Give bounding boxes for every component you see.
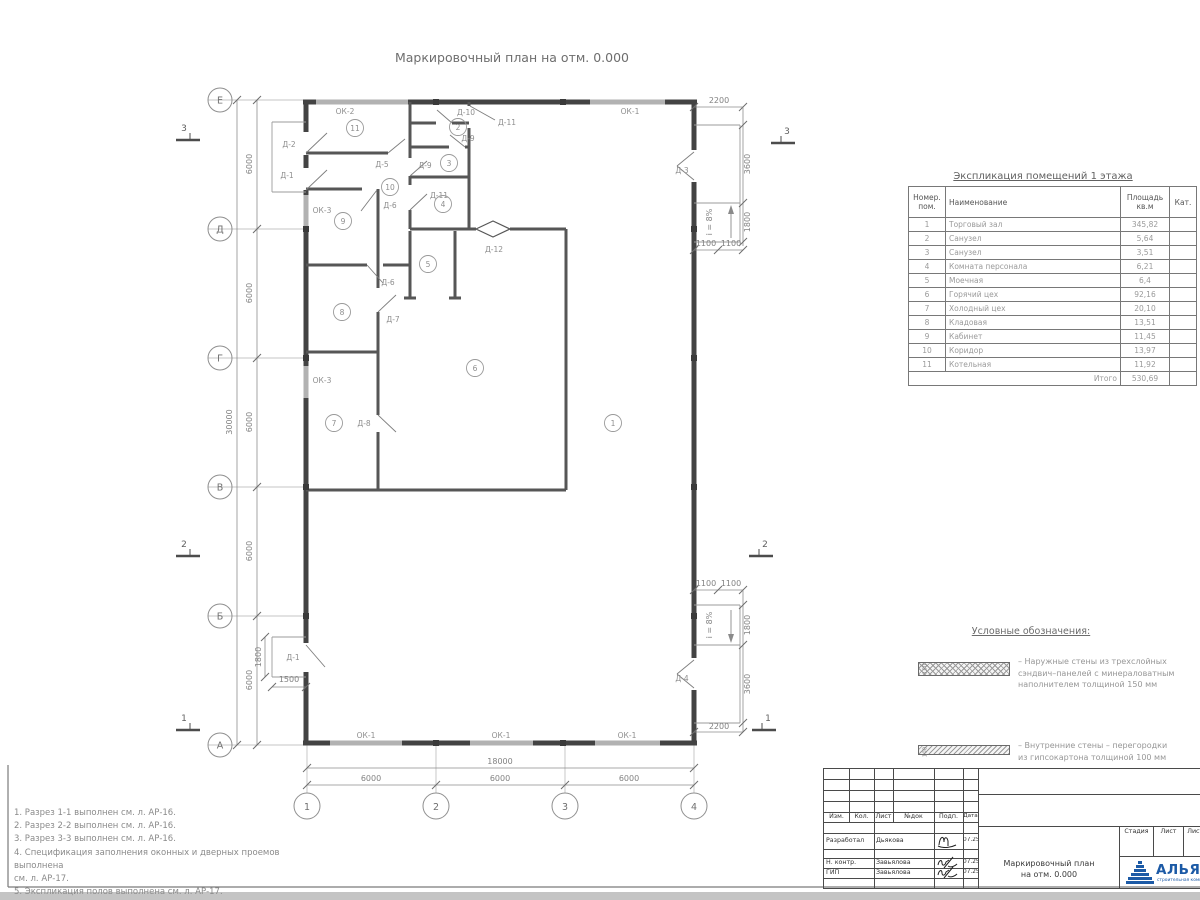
explication-cell: Холодный цех <box>946 302 1121 316</box>
dimension-label: 3600 <box>743 154 752 174</box>
ramp-arrow-head <box>728 634 734 643</box>
dimension-label: 1800 <box>254 647 263 667</box>
axis-label: В <box>217 483 224 494</box>
explication-cell <box>1170 316 1197 330</box>
explication-cell <box>1170 246 1197 260</box>
door-window-label: Д-7 <box>386 315 400 324</box>
explication-row: 7Холодный цех20,10 <box>909 302 1197 316</box>
legend-item-exterior-wall: 150 – Наружные стены из трехслойныхсэндв… <box>898 658 1198 698</box>
dimension-label: 2200 <box>709 96 729 105</box>
signature-dyakova <box>936 833 962 848</box>
door-window-label: ОК-3 <box>313 376 332 385</box>
explication-cell <box>1170 288 1197 302</box>
explication-cell: 9 <box>909 330 946 344</box>
door-swing <box>388 139 405 153</box>
dimension-label: 1800 <box>743 212 752 232</box>
legend-line: из гипсокартона толщиной 100 мм <box>1018 752 1167 764</box>
section-marker-label: 3 <box>181 124 187 134</box>
column-marker <box>433 99 439 105</box>
door-window-label: Д-3 <box>675 166 689 175</box>
explication-cell <box>1170 260 1197 274</box>
dimension-label: 6000 <box>361 774 381 783</box>
door-window-label: Д-5 <box>375 160 389 169</box>
tb-sheet: Лист <box>1154 828 1183 835</box>
explication-cell: 3,51 <box>1121 246 1170 260</box>
title-block: Изм. Кол. Лист №док Подп. Дата Разработа… <box>823 768 1200 889</box>
note-line: см. л. АР-17. <box>14 873 314 886</box>
column-marker <box>691 226 697 232</box>
exterior-wall-swatch: 150 <box>918 662 1010 676</box>
explication-cell: 20,10 <box>1121 302 1170 316</box>
explication-cell: 92,16 <box>1121 288 1170 302</box>
tb-stage: Стадия <box>1120 828 1153 835</box>
door-swing <box>677 152 694 166</box>
explication-cell: 11 <box>909 358 946 372</box>
dimension-label: 6000 <box>490 774 510 783</box>
dimension-label: 1100 <box>721 239 741 248</box>
room-number: 7 <box>332 419 337 428</box>
column-marker <box>691 613 697 619</box>
dimension-label: 1500 <box>279 675 299 684</box>
explication-row: 1Торговый зал345,82 <box>909 218 1197 232</box>
explication-table: Номер. пом. Наименование Площадь кв.м Ка… <box>908 186 1197 386</box>
ramp-arrow-head <box>728 205 734 214</box>
explication-cell: 11,92 <box>1121 358 1170 372</box>
explication-row: 4Комната персонала6,21 <box>909 260 1197 274</box>
door-window-label: Д-2 <box>282 140 296 149</box>
column-marker <box>560 99 566 105</box>
axis-label: А <box>217 741 224 752</box>
explication-title: Экспликация помещений 1 этажа <box>908 171 1178 182</box>
axis-label: 4 <box>691 802 697 813</box>
door-window-label: ОК-1 <box>621 107 640 116</box>
door-window-label: Д-12 <box>485 245 503 254</box>
tb-role: ГИП <box>826 869 873 876</box>
tb-col-izm: Изм. <box>824 813 849 820</box>
note-line: 5. Экспликация полов выполнена см. л. АР… <box>14 886 314 899</box>
legend-line: сэндвич–панелей с минераловатным <box>1018 668 1174 680</box>
column-marker <box>433 740 439 746</box>
door-swing <box>378 295 396 312</box>
door-window-label: ОК-1 <box>492 731 511 740</box>
legend-line: – Внутренние стены – перегородки <box>1018 740 1167 752</box>
explication-total-row: Итого530,69 <box>909 372 1197 386</box>
tb-col-list: Лист <box>874 813 893 820</box>
legend-line: – Наружные стены из трехслойных <box>1018 656 1174 668</box>
tb-doc-line1: Маркировочный план <box>979 859 1119 870</box>
explication-cell <box>1170 218 1197 232</box>
dimension-label: i = 8% <box>705 611 714 638</box>
total-label: Итого <box>909 372 1121 386</box>
plan-title: Маркировочный план на отм. 0.000 <box>395 50 629 65</box>
wall-thickness-label: 100 <box>922 747 928 758</box>
door-window-label: ОК-2 <box>336 107 355 116</box>
dimension-label: 30000 <box>225 409 234 434</box>
dimension-label: 6000 <box>245 670 254 690</box>
room-number: 9 <box>341 217 346 226</box>
tb-doc-title: Маркировочный план на отм. 0.000 <box>979 859 1119 885</box>
dimension-label: 18000 <box>487 757 512 766</box>
tb-sheets: Листов <box>1184 828 1200 835</box>
door-swing <box>378 415 396 432</box>
col-header-num: Номер. пом. <box>909 187 946 218</box>
explication-cell: 3 <box>909 246 946 260</box>
explication-cell: 11,45 <box>1121 330 1170 344</box>
tb-date: 07.25 <box>963 859 978 865</box>
explication-cell: Горячий цех <box>946 288 1121 302</box>
door-window-label: Д-6 <box>381 278 395 287</box>
tb-col-kol: Кол. <box>849 813 874 820</box>
tb-name: Дьякова <box>876 837 932 844</box>
explication-cell: Кладовая <box>946 316 1121 330</box>
door-window-label: Д-9 <box>418 161 432 170</box>
door-swing <box>306 645 325 667</box>
column-marker <box>303 484 309 490</box>
explication-cell: Котельная <box>946 358 1121 372</box>
double-door-symbol <box>476 221 510 237</box>
explication-row: 9Кабинет11,45 <box>909 330 1197 344</box>
explication-cell: 5 <box>909 274 946 288</box>
dimension-label: 6000 <box>619 774 639 783</box>
door-window-label: ОК-1 <box>618 731 637 740</box>
tb-doc-line2: на отм. 0.000 <box>979 870 1119 881</box>
explication-cell <box>1170 274 1197 288</box>
column-marker <box>691 484 697 490</box>
explication-cell: Моечная <box>946 274 1121 288</box>
column-marker <box>303 355 309 361</box>
interior-wall-swatch: 100 <box>918 745 1010 755</box>
legend-text: – Внутренние стены – перегородкииз гипсо… <box>1018 740 1167 763</box>
door-swing <box>677 660 694 674</box>
axis-label: Е <box>217 96 223 107</box>
dimension-label: 1100 <box>721 579 741 588</box>
dimension-label: 6000 <box>245 412 254 432</box>
company-logo: АЛЬЯНС строительная компания <box>1120 857 1200 888</box>
column-marker <box>303 226 309 232</box>
room-number: 1 <box>611 419 616 428</box>
explication-row: 11Котельная11,92 <box>909 358 1197 372</box>
explication-block: Экспликация помещений 1 этажа Номер. пом… <box>908 171 1178 386</box>
door-window-label: Д-10 <box>457 108 475 117</box>
explication-cell: 5,64 <box>1121 232 1170 246</box>
explication-cell: 6 <box>909 288 946 302</box>
signature-zavyalova <box>936 866 962 879</box>
door-swing <box>361 190 377 211</box>
note-line: 4. Спецификация заполнения оконных и две… <box>14 847 314 873</box>
explication-cell: 6,21 <box>1121 260 1170 274</box>
door-swing <box>306 170 327 190</box>
explication-cell <box>1170 358 1197 372</box>
room-number: 4 <box>441 200 446 209</box>
tb-role: Н. контр. <box>826 859 873 866</box>
legend-line: наполнителем толщиной 150 мм <box>1018 679 1174 691</box>
door-window-label: Д-1 <box>280 171 294 180</box>
explication-cell: 345,82 <box>1121 218 1170 232</box>
explication-cell <box>1170 330 1197 344</box>
dimension-label: 6000 <box>245 541 254 561</box>
section-marker-label: 3 <box>784 127 790 137</box>
explication-body: 1Торговый зал345,822Санузел5,643Санузел3… <box>909 218 1197 386</box>
explication-row: 6Горячий цех92,16 <box>909 288 1197 302</box>
door-window-label: ОК-3 <box>313 206 332 215</box>
room-number: 6 <box>473 364 478 373</box>
column-marker <box>303 613 309 619</box>
note-line: 2. Разрез 2-2 выполнен см. л. АР-16. <box>14 820 314 833</box>
explication-cell: 13,97 <box>1121 344 1170 358</box>
col-header-name: Наименование <box>946 187 1121 218</box>
axis-label: 3 <box>562 802 568 813</box>
door-window-label: Д-11 <box>498 118 516 127</box>
explication-row: 2Санузел5,64 <box>909 232 1197 246</box>
dimension-label: 1100 <box>696 239 716 248</box>
dimension-label: 6000 <box>245 154 254 174</box>
drawing-sheet: Маркировочный план на отм. 0.000 ЕДГВБА1… <box>0 0 1200 900</box>
explication-cell: 6,4 <box>1121 274 1170 288</box>
tb-name: Завьялова <box>876 859 932 866</box>
door-window-label: Д-8 <box>357 419 371 428</box>
dimension-label: 2200 <box>709 722 729 731</box>
wall-thickness-label: 150 <box>922 664 928 675</box>
section-marker-label: 2 <box>762 540 768 550</box>
explication-header-row: Номер. пом. Наименование Площадь кв.м Ка… <box>909 187 1197 218</box>
tb-role: Разработал <box>826 837 873 844</box>
explication-cell: Кабинет <box>946 330 1121 344</box>
note-line: 3. Разрез 3-3 выполнен см. л. АР-16. <box>14 833 314 846</box>
dimension-label: 1800 <box>743 615 752 635</box>
tb-date: 07.25 <box>963 869 978 875</box>
explication-cell <box>1170 302 1197 316</box>
explication-row: 5Моечная6,4 <box>909 274 1197 288</box>
dimension-label: 6000 <box>245 283 254 303</box>
door-window-label: Д-1 <box>286 653 300 662</box>
section-marker-label: 2 <box>181 540 187 550</box>
dimension-label: i = 8% <box>705 208 714 235</box>
explication-cell <box>1170 344 1197 358</box>
explication-cell: Санузел <box>946 232 1121 246</box>
notes-block: 1. Разрез 1-1 выполнен см. л. АР-16.2. Р… <box>14 807 314 899</box>
total-value: 530,69 <box>1121 372 1170 386</box>
door-window-label: Д-9 <box>461 134 475 143</box>
tb-col-data: Дата <box>963 813 978 819</box>
section-marker-label: 1 <box>765 714 771 724</box>
col-header-cat: Кат. <box>1170 187 1197 218</box>
door-swing <box>410 194 427 210</box>
dimension-label: 1100 <box>696 579 716 588</box>
room-number: 8 <box>340 308 345 317</box>
door-window-label: Д-6 <box>383 201 397 210</box>
explication-cell <box>1170 232 1197 246</box>
door-swing <box>437 110 452 123</box>
door-swing <box>306 133 327 153</box>
explication-cell: 10 <box>909 344 946 358</box>
axis-label: Б <box>217 612 224 623</box>
room-number: 3 <box>447 159 452 168</box>
explication-cell: 13,51 <box>1121 316 1170 330</box>
room-number: 5 <box>426 260 431 269</box>
note-line: 1. Разрез 1-1 выполнен см. л. АР-16. <box>14 807 314 820</box>
axis-label: 2 <box>433 802 439 813</box>
explication-cell: Коридор <box>946 344 1121 358</box>
explication-row: 8Кладовая13,51 <box>909 316 1197 330</box>
logo-text: АЛЬЯНС <box>1156 862 1200 878</box>
room-number: 2 <box>456 123 461 132</box>
tb-name: Завьялова <box>876 869 932 876</box>
col-header-area: Площадь кв.м <box>1121 187 1170 218</box>
room-number: 11 <box>350 124 360 133</box>
legend-block: Условные обозначения: 150 – Наружные сте… <box>898 626 1198 637</box>
tb-col-podp: Подп. <box>934 813 963 820</box>
explication-cell: Санузел <box>946 246 1121 260</box>
explication-cell: 7 <box>909 302 946 316</box>
explication-row: 3Санузел3,51 <box>909 246 1197 260</box>
logo-triangle-icon <box>1126 859 1158 887</box>
explication-cell: 4 <box>909 260 946 274</box>
tb-date: 07.25 <box>963 837 978 843</box>
explication-cell: 1 <box>909 218 946 232</box>
door-window-label: Д-4 <box>675 674 689 683</box>
room-number: 10 <box>385 183 395 192</box>
column-marker <box>691 355 697 361</box>
legend-text: – Наружные стены из трехслойныхсэндвич–п… <box>1018 656 1174 691</box>
axis-label: Д <box>216 225 223 236</box>
tb-col-ndoc: №док <box>893 813 934 820</box>
explication-cell: 8 <box>909 316 946 330</box>
dimension-label: 3600 <box>743 674 752 694</box>
explication-cell: Комната персонала <box>946 260 1121 274</box>
explication-row: 10Коридор13,97 <box>909 344 1197 358</box>
logo-subtext: строительная компания <box>1157 878 1200 883</box>
door-window-label: ОК-1 <box>357 731 376 740</box>
legend-title: Условные обозначения: <box>898 626 1164 637</box>
explication-cell: Торговый зал <box>946 218 1121 232</box>
column-marker <box>560 740 566 746</box>
explication-cell: 2 <box>909 232 946 246</box>
section-marker-label: 1 <box>181 714 187 724</box>
axis-label: Г <box>217 354 223 365</box>
